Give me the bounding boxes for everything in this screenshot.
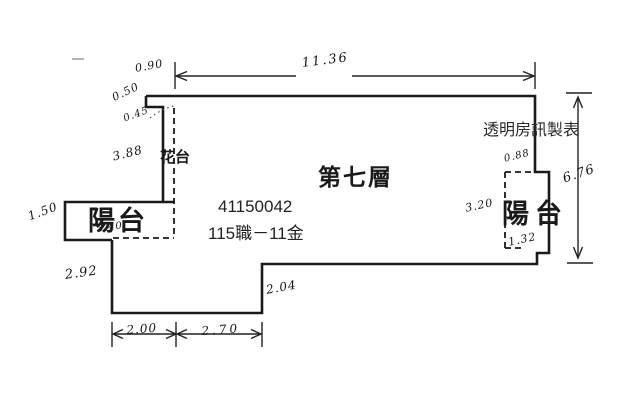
floor-plan-page: 第七層 陽台 陽台 花台 透明房訊製表 41150042 115職－11金 0.… [0, 0, 640, 409]
floor-level-label: 第七層 [318, 158, 393, 192]
serial-number-text: 41150042 [218, 197, 292, 217]
dim-bottom-segment2-label: 2.70 [201, 321, 241, 338]
dim-bottom-segment1-label: 2.00 [126, 321, 158, 337]
maker-watermark-label: 透明房訊製表 [483, 116, 579, 140]
parcel-code-text: 115職－11金 [208, 219, 304, 244]
top-dimension-line [175, 62, 535, 89]
planter-label: 花台 [160, 146, 190, 167]
right-balcony-label: 陽台 [502, 192, 568, 231]
